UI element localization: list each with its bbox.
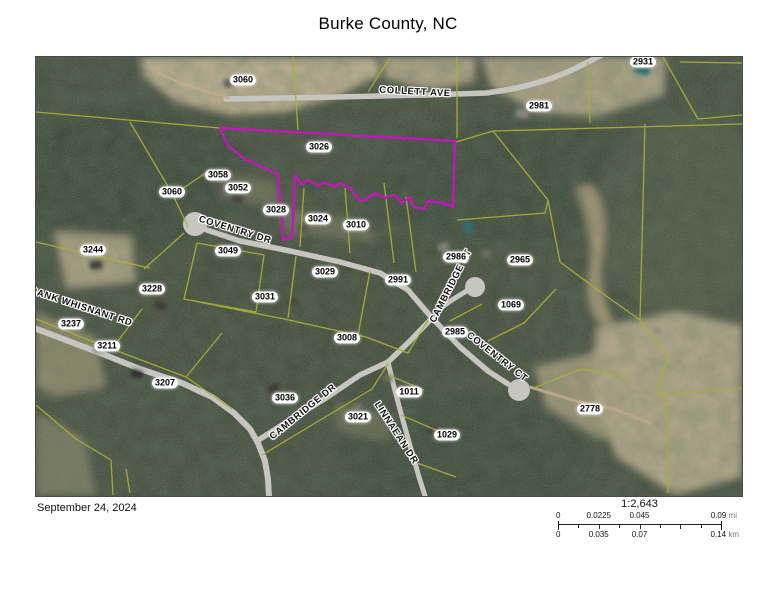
km-full: 0.14 km <box>711 530 739 539</box>
mi-0: 0 <box>556 511 560 520</box>
mi-unit: mi <box>729 511 737 520</box>
scalebar-mi-labels: 0 0.0225 0.045 0.09 mi <box>558 511 721 521</box>
map-title: Burke County, NC <box>0 14 776 34</box>
mi-half: 0.045 <box>629 511 649 520</box>
page: Burke County, NC <box>0 0 776 600</box>
scalebar-tick <box>599 524 600 529</box>
scalebar-km-labels: 0 0.035 0.07 0.14 km <box>558 530 721 540</box>
map-date: September 24, 2024 <box>37 502 137 514</box>
scalebar-tick <box>680 524 681 529</box>
scalebar-tick <box>660 524 661 528</box>
aerial-map-canvas <box>36 57 742 496</box>
culdesac-cambridge-ct <box>465 277 485 297</box>
scale-ratio: 1:2,643 <box>558 498 721 510</box>
scalebar-ticks <box>558 521 721 530</box>
km-quarter: 0.035 <box>589 530 609 539</box>
scalebar-tick <box>721 521 722 530</box>
km-half: 0.07 <box>632 530 648 539</box>
scalebar-tick <box>558 521 559 530</box>
km-unit: km <box>728 530 739 539</box>
scalebar-tick <box>578 524 579 528</box>
culdesac-coventry-ct <box>508 379 530 401</box>
map-viewport[interactable]: COLLETT AVECOVENTRY DRFRANK WHISNANT RDC… <box>35 56 743 497</box>
scalebar-tick <box>640 524 641 529</box>
mi-full: 0.09 mi <box>711 511 737 520</box>
scalebar-tick <box>701 524 702 528</box>
mi-quarter: 0.0225 <box>587 511 611 520</box>
km-0: 0 <box>556 530 560 539</box>
scalebar: 1:2,643 0 0.0225 0.045 0.09 mi 0 0.035 0… <box>558 498 721 540</box>
scalebar-tick <box>619 524 620 528</box>
